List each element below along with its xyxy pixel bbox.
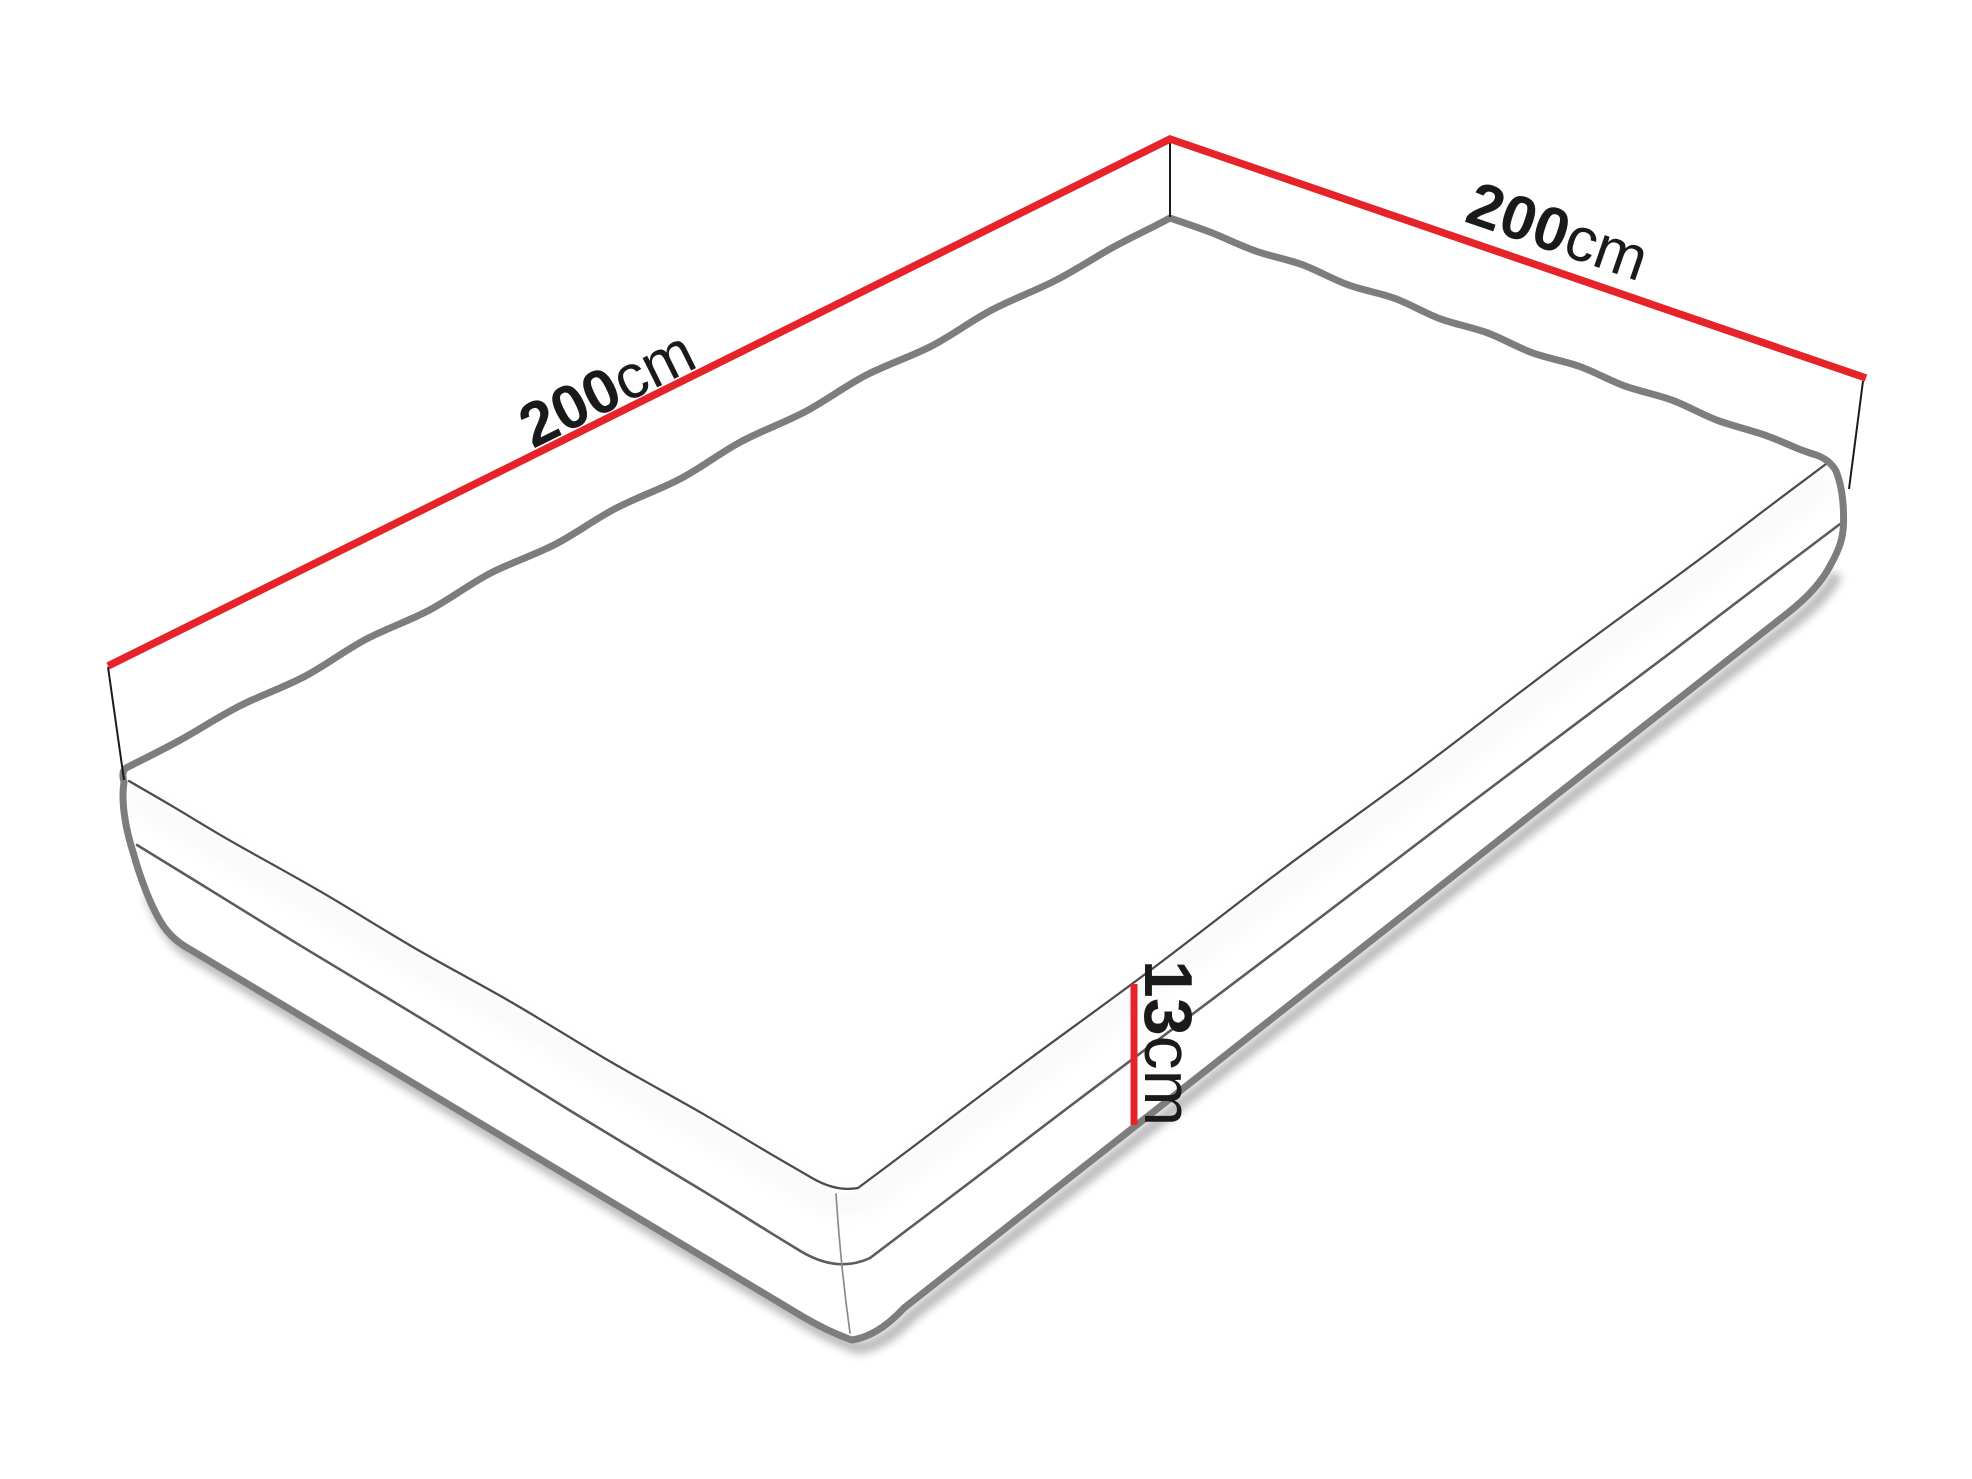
svg-text:13cm: 13cm [1130,960,1206,1126]
